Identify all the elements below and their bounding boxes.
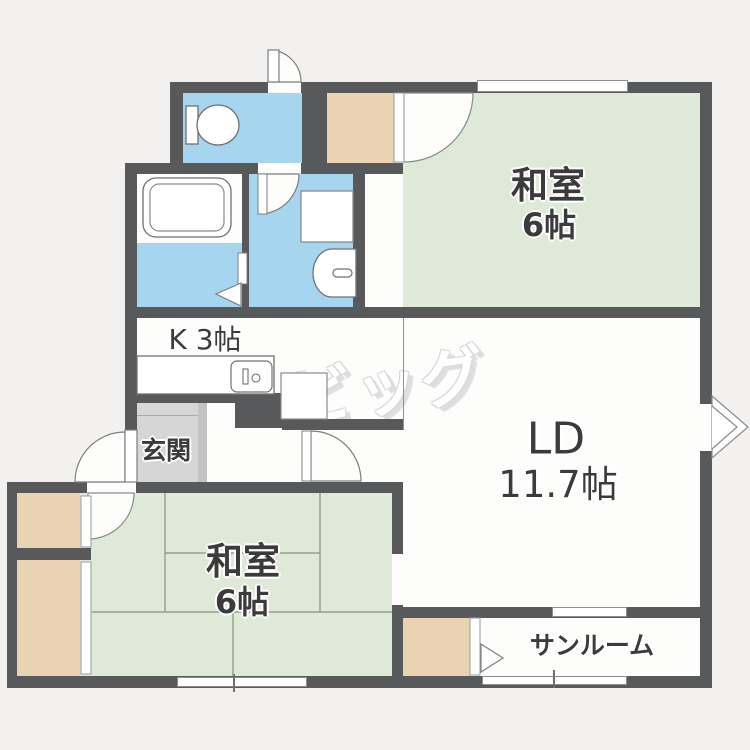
room-label-kitchen: K 3帖	[168, 318, 241, 358]
washitsu-top-door-icon	[394, 93, 473, 162]
kitchen-sink-icon	[137, 356, 274, 394]
bay-window-icon	[712, 396, 748, 458]
room-label-genkan: 玄関	[141, 431, 191, 467]
toilet-door-icon	[268, 50, 301, 82]
room-size-washitsu-top: 6帖	[522, 200, 576, 246]
room-size-ld: 11.7帖	[498, 454, 617, 508]
sunroom-door-icon	[470, 618, 503, 675]
closet-bottom-1-door	[81, 496, 91, 547]
bathroom-door-icon	[216, 253, 247, 306]
hall-ld-door-icon	[302, 431, 361, 481]
refrigerator-space-icon	[281, 373, 327, 419]
floor-plan: ビッグ	[0, 0, 750, 750]
entrance-door-icon	[75, 430, 137, 482]
room-label-sunroom: サンルーム	[530, 626, 654, 662]
closet-bottom-2-door	[81, 562, 91, 674]
room-size-washitsu-bottom: 6帖	[215, 577, 269, 623]
washitsu-bottom-door-icon	[88, 493, 134, 539]
bathtub-icon	[143, 178, 231, 237]
washbasin-icon	[313, 249, 356, 297]
toilet-icon	[186, 105, 239, 145]
washroom-door-icon	[258, 174, 299, 214]
washing-machine-icon	[301, 191, 353, 242]
